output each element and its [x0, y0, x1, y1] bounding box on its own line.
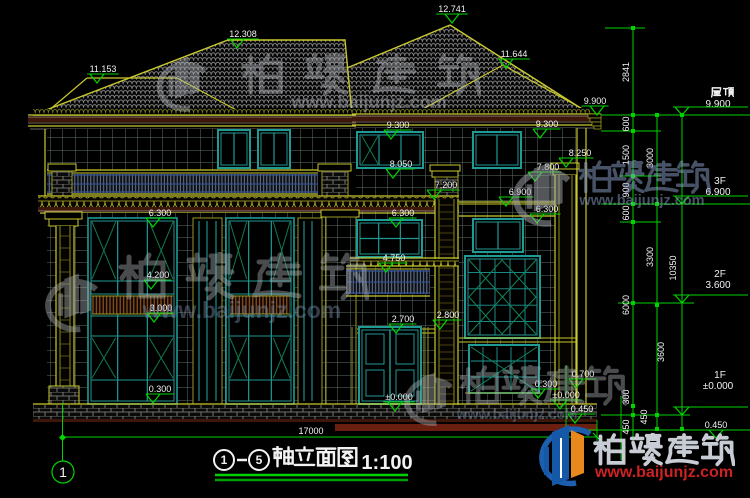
svg-text:2.700: 2.700: [392, 314, 415, 324]
svg-text:12.308: 12.308: [229, 29, 257, 39]
svg-text:www.baijunjz.com: www.baijunjz.com: [290, 92, 446, 112]
svg-text:7.200: 7.200: [435, 180, 458, 190]
svg-text:9.300: 9.300: [387, 120, 410, 130]
svg-text:10350: 10350: [668, 255, 678, 280]
svg-text:17000: 17000: [298, 426, 323, 436]
svg-text:6000: 6000: [621, 295, 631, 315]
svg-text:±0.000: ±0.000: [703, 381, 734, 392]
svg-text:6.300: 6.300: [392, 208, 415, 218]
svg-text:450: 450: [621, 419, 631, 434]
svg-text:9.300: 9.300: [536, 119, 559, 129]
svg-text:8.050: 8.050: [390, 159, 413, 169]
svg-text:4.750: 4.750: [383, 253, 406, 263]
svg-text:www.baijunjz.com: www.baijunjz.com: [142, 297, 342, 323]
svg-text:2F: 2F: [714, 269, 726, 280]
svg-text:12.741: 12.741: [438, 4, 466, 14]
svg-text:3000: 3000: [645, 148, 655, 168]
svg-text:8.250: 8.250: [569, 148, 592, 158]
svg-text:3300: 3300: [645, 247, 655, 267]
svg-text:11.644: 11.644: [501, 49, 528, 59]
svg-text:0.450: 0.450: [705, 420, 728, 430]
svg-text:www.baijunjz.com: www.baijunjz.com: [578, 193, 704, 209]
svg-text:9.900: 9.900: [705, 99, 730, 110]
svg-text:3600: 3600: [656, 342, 666, 362]
svg-text:450: 450: [639, 409, 649, 424]
svg-text:1: 1: [221, 453, 228, 467]
svg-text:6.300: 6.300: [149, 208, 172, 218]
svg-text:2841: 2841: [621, 62, 631, 82]
svg-text:9.900: 9.900: [584, 96, 607, 106]
svg-text:0.300: 0.300: [149, 384, 172, 394]
svg-text:3F: 3F: [714, 176, 726, 187]
svg-text:1:100: 1:100: [361, 452, 412, 474]
svg-text:www.baijunjz.com: www.baijunjz.com: [594, 464, 733, 481]
svg-text:600: 600: [621, 116, 631, 131]
svg-text:3.600: 3.600: [705, 280, 730, 291]
svg-text:www.baijunjz.com: www.baijunjz.com: [456, 406, 578, 422]
svg-text:1F: 1F: [714, 370, 726, 381]
svg-text:5: 5: [256, 453, 263, 467]
svg-text:11.153: 11.153: [90, 64, 117, 74]
svg-text:2.800: 2.800: [437, 310, 460, 320]
svg-text:1: 1: [59, 464, 67, 480]
